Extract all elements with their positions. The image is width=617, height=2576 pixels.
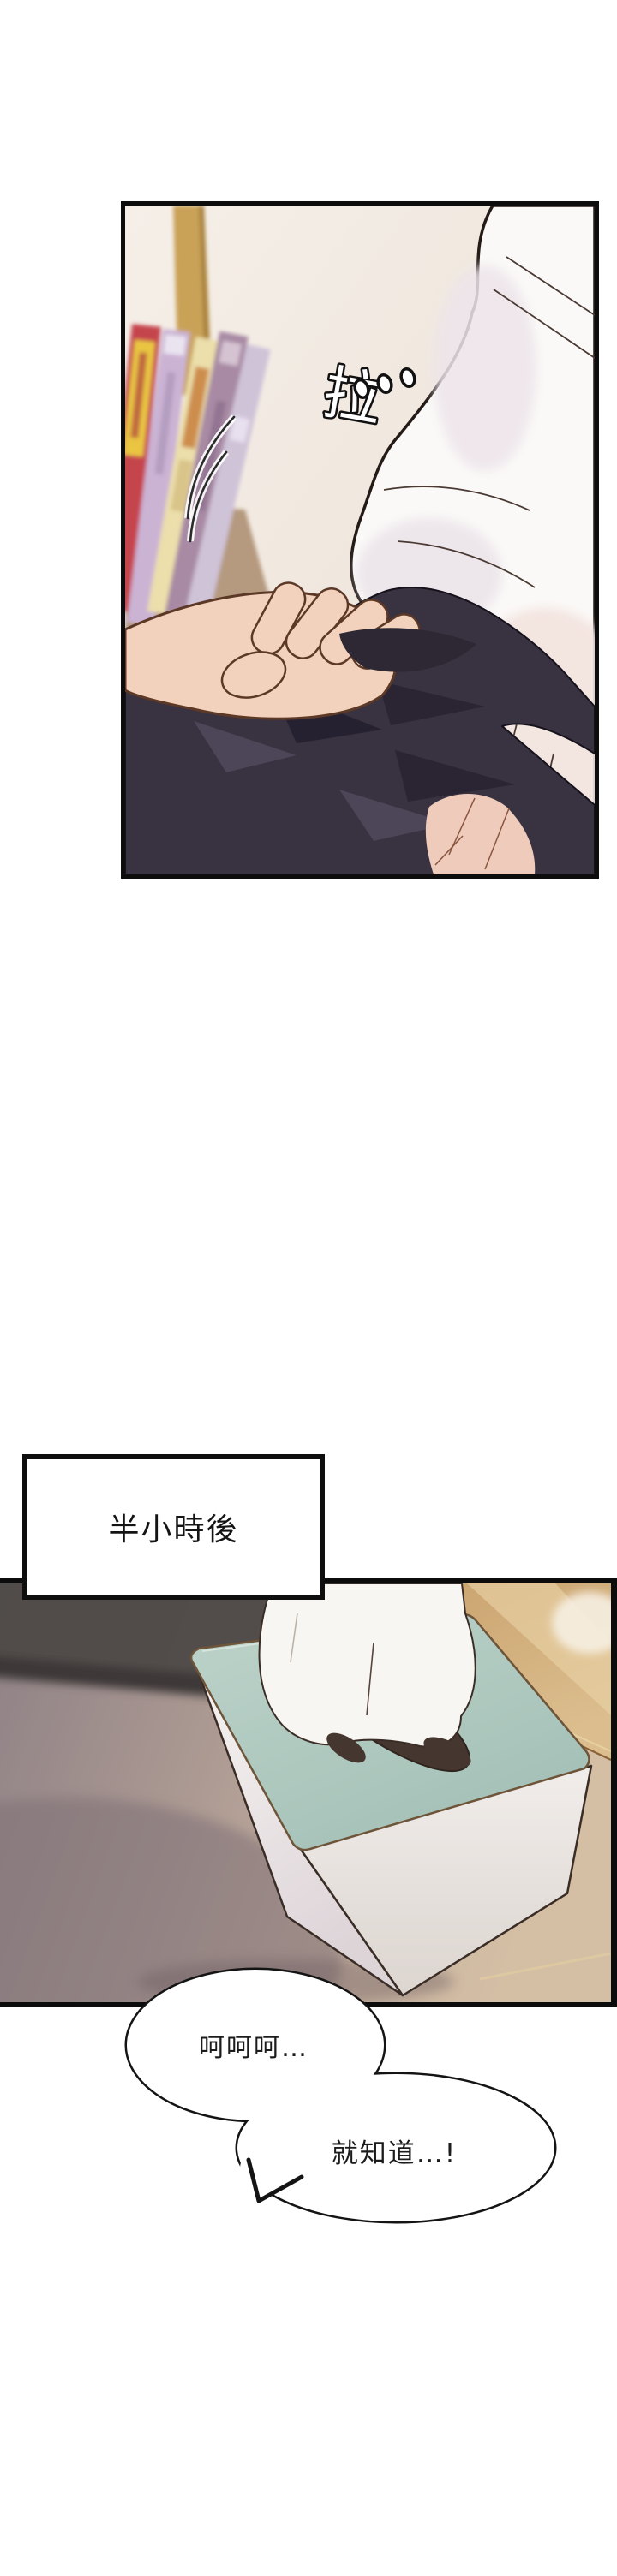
sfx-text: 拉 xyxy=(318,359,387,436)
bubble-line-1: 呵呵呵… xyxy=(159,2026,348,2064)
panel-2-art xyxy=(0,1583,611,2002)
panel-1: 拉 xyxy=(121,201,599,879)
caption-box: 半小時後 xyxy=(22,1454,325,1600)
comic-page: 拉 xyxy=(0,0,617,2576)
panel-2 xyxy=(0,1578,617,2007)
panel-1-art: 拉 xyxy=(125,206,595,874)
caption-text: 半小時後 xyxy=(108,1505,238,1549)
speech-bubble xyxy=(0,1953,617,2244)
bubble-line-2: 就知道…! xyxy=(291,2132,497,2170)
